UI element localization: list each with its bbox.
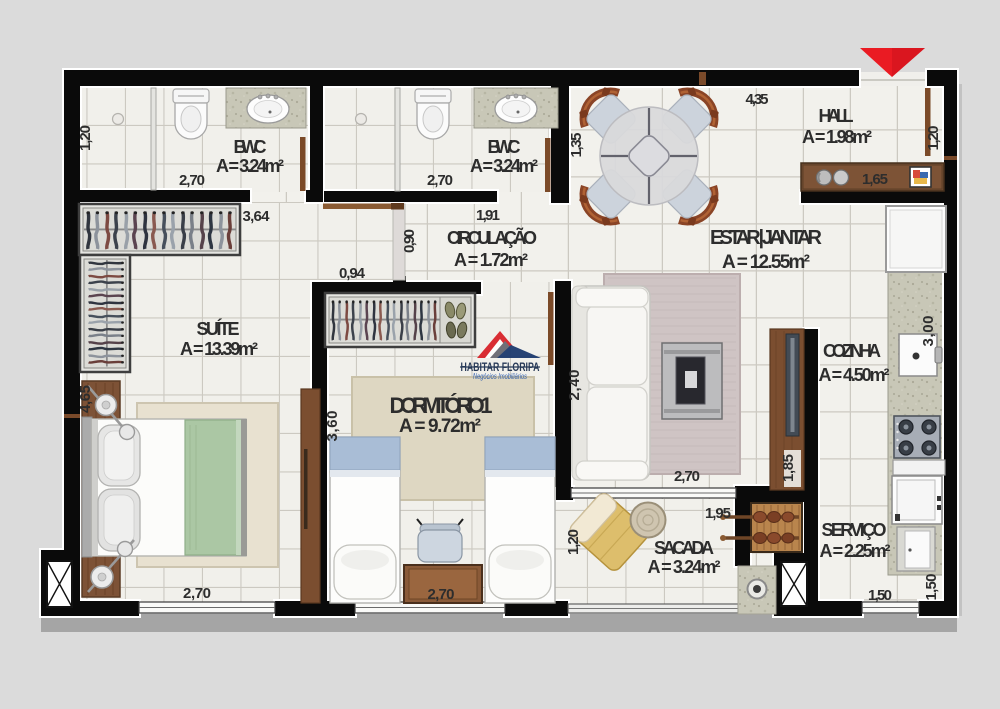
svg-text:1,91: 1,91 (476, 207, 500, 224)
svg-text:DORMITÓRIO 1: DORMITÓRIO 1 (390, 393, 493, 418)
svg-text:Negócios Imobiliários: Negócios Imobiliários (473, 372, 527, 381)
svg-text:2,70: 2,70 (428, 586, 455, 603)
svg-text:3,00: 3,00 (920, 316, 937, 347)
svg-text:2,70: 2,70 (179, 172, 205, 189)
svg-text:1,85: 1,85 (780, 454, 797, 482)
svg-text:2,70: 2,70 (183, 585, 211, 602)
svg-text:SACADA: SACADA (654, 538, 714, 558)
svg-text:2,40: 2,40 (566, 370, 583, 401)
svg-text:ESTAR | JANTAR: ESTAR | JANTAR (710, 227, 823, 249)
svg-text:3,64: 3,64 (243, 208, 271, 225)
svg-text:4,65: 4,65 (77, 385, 94, 413)
svg-text:A = 3.24m²: A = 3.24m² (470, 156, 538, 176)
svg-text:SUÍTE: SUÍTE (197, 318, 240, 339)
svg-text:A = 1.72m²: A = 1.72m² (454, 250, 528, 270)
svg-text:COZINHA: COZINHA (823, 341, 881, 361)
svg-text:A = 3.24m²: A = 3.24m² (648, 557, 721, 577)
svg-text:1,50: 1,50 (923, 574, 940, 601)
svg-text:1,50: 1,50 (868, 587, 892, 604)
svg-text:A = 9.72m²: A = 9.72m² (399, 416, 481, 437)
svg-text:1,95: 1,95 (705, 505, 731, 522)
svg-text:2,70: 2,70 (427, 172, 453, 189)
svg-text:A = 2.25m²: A = 2.25m² (820, 541, 891, 561)
svg-text:A = 13.39m²: A = 13.39m² (180, 339, 258, 359)
svg-text:1,20: 1,20 (925, 126, 942, 151)
svg-text:A = 1.98m²: A = 1.98m² (802, 127, 872, 147)
svg-text:A = 3.24m²: A = 3.24m² (216, 156, 284, 176)
svg-text:3,60: 3,60 (324, 411, 341, 442)
svg-text:4,35: 4,35 (746, 91, 769, 108)
svg-text:1,20: 1,20 (77, 125, 94, 151)
svg-text:0,94: 0,94 (339, 265, 366, 282)
svg-text:1,35: 1,35 (568, 133, 585, 158)
svg-text:A = 4.50m²: A = 4.50m² (819, 365, 890, 385)
svg-text:A = 12.55m²: A = 12.55m² (722, 252, 810, 273)
svg-text:0,90: 0,90 (401, 229, 418, 253)
svg-text:HALL: HALL (819, 106, 854, 126)
svg-text:CIRCULAÇÃO: CIRCULAÇÃO (447, 227, 537, 248)
svg-text:SERVIÇO: SERVIÇO (822, 520, 887, 540)
svg-text:BWC: BWC (488, 137, 521, 157)
svg-text:2,70: 2,70 (674, 468, 700, 485)
svg-text:BWC: BWC (234, 137, 267, 157)
svg-text:1,65: 1,65 (862, 171, 888, 188)
svg-text:1,20: 1,20 (565, 529, 582, 555)
